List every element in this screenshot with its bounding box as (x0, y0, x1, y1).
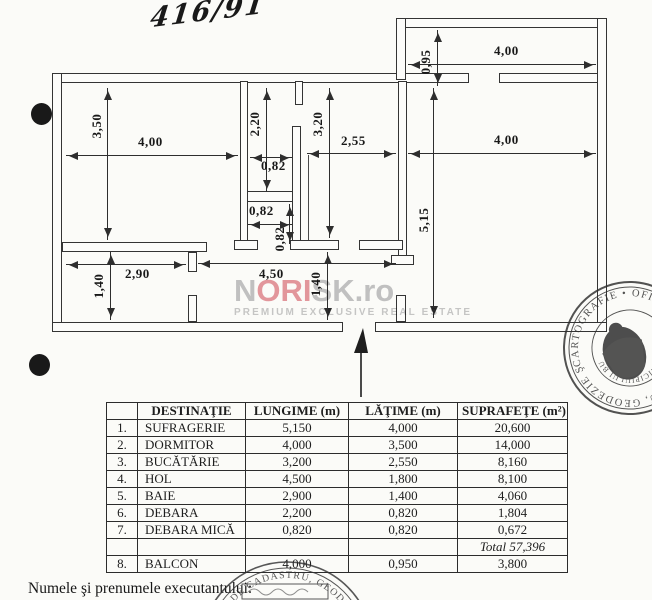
entrance-arrow (347, 327, 377, 399)
cell-index: 6. (107, 505, 138, 522)
cell-destinatie: DEBARA (138, 505, 246, 522)
cell-destinatie: HOL (138, 471, 246, 488)
dimension-line-hol-width (198, 263, 396, 264)
cell-lungime: 4,500 (246, 471, 349, 488)
dimension-label-debara-height: 2,20 (247, 112, 263, 137)
dimension-line-debara-mica-width (248, 224, 292, 225)
header-destinatie: DESTINAŢIE (138, 403, 246, 420)
scanned-document: 416/91 (0, 0, 652, 600)
cell-latime (349, 539, 458, 556)
wall-baie-right-lower (188, 295, 197, 322)
header-index (107, 403, 138, 420)
hole-punch-dot-top (31, 103, 52, 125)
wall-dormitor-right (240, 81, 248, 243)
cell-index: 8. (107, 556, 138, 573)
dimension-line-bucatarie-width (307, 153, 396, 154)
cell-suprafete: 0,672 (458, 522, 568, 539)
dimension-line-debara-height (266, 88, 267, 192)
cell-destinatie: BUCĂTĂRIE (138, 454, 246, 471)
wall-debara-right (292, 126, 301, 242)
wall-balcony-top (396, 18, 607, 28)
cell-index: 1. (107, 420, 138, 437)
dimension-line-bucatarie-height (329, 88, 330, 238)
cell-suprafete: 8,160 (458, 454, 568, 471)
cell-index: 3. (107, 454, 138, 471)
watermark-brand-gray-start: N (234, 273, 256, 308)
cell-suprafete: 8,100 (458, 471, 568, 488)
cell-latime: 0,820 (349, 522, 458, 539)
dimension-label-dormitor-width: 4,00 (138, 134, 163, 150)
watermark-tagline: PREMIUM EXCLUSIVE REAL ESTATE (234, 307, 472, 318)
cell-suprafete: 14,000 (458, 437, 568, 454)
cell-lungime: 0,820 (246, 522, 349, 539)
watermark-brand-accent: ORI (256, 273, 311, 308)
dimension-label-debara-width: 0,82 (261, 158, 286, 174)
dimension-label-balcon-width: 4,00 (494, 43, 519, 59)
wall-baie-top (62, 242, 207, 252)
cell-latime: 1,800 (349, 471, 458, 488)
cell-suprafete: 1,804 (458, 505, 568, 522)
cell-lungime: 2,200 (246, 505, 349, 522)
wall-left (52, 73, 62, 332)
wall-bottom-left (52, 322, 343, 332)
cell-lungime: 5,150 (246, 420, 349, 437)
dimension-line-balcon-height (437, 30, 438, 86)
stamp-ring-text: DE CADASTRU, GEODEZIE ŞI (228, 570, 364, 600)
dimension-label-sufragerie-width: 4,00 (494, 132, 519, 148)
dimension-line-baie-width (66, 264, 186, 265)
dimension-label-sufragerie-height: 5,15 (416, 208, 432, 233)
watermark: NORISK.ro PREMIUM EXCLUSIVE REAL ESTATE (234, 276, 472, 318)
dimension-label-debara-mica-width: 0,82 (249, 203, 274, 219)
cell-index: 2. (107, 437, 138, 454)
dimension-line-sufragerie-width (408, 153, 596, 154)
cell-index (107, 539, 138, 556)
cadastru-stamp-right: CARTOGRAFIE • OFICIUL DE CADASTRU, GEODE… (560, 274, 652, 444)
watermark-brand: NORISK.ro (234, 276, 472, 306)
wall-top-right (499, 73, 607, 83)
cell-latime: 2,550 (349, 454, 458, 471)
cell-latime: 0,820 (349, 505, 458, 522)
cell-destinatie: DORMITOR (138, 437, 246, 454)
header-lungime: LUNGIME (m) (246, 403, 349, 420)
table-row: 4. HOL 4,500 1,800 8,100 (107, 471, 568, 488)
cell-destinatie (138, 539, 246, 556)
dimension-line-baie-height (110, 252, 111, 320)
cell-latime: 4,000 (349, 420, 458, 437)
cell-destinatie: DEBARA MICĂ (138, 522, 246, 539)
cell-latime: 1,400 (349, 488, 458, 505)
wall-debara-stub (295, 81, 303, 105)
file-number-handwritten: 416/91 (148, 0, 267, 34)
cell-suprafete: 4,060 (458, 488, 568, 505)
hole-punch-dot-bottom (29, 354, 50, 376)
cell-index: 7. (107, 522, 138, 539)
cell-index: 4. (107, 471, 138, 488)
wall-balcony-left (396, 18, 406, 80)
table-row: 5. BAIE 2,900 1,400 4,060 (107, 488, 568, 505)
cell-lungime: 2,900 (246, 488, 349, 505)
dimension-label-baie-height: 1,40 (91, 274, 107, 299)
wall-dormitor-right-footing (234, 240, 258, 250)
header-suprafete: SUPRAFEŢE (m²) (458, 403, 568, 420)
cell-destinatie: BAIE (138, 488, 246, 505)
table-row: 6. DEBARA 2,200 0,820 1,804 (107, 505, 568, 522)
wall-baie-right-upper (188, 252, 197, 272)
cell-total: Total 57,396 (458, 539, 568, 556)
extension-line (308, 155, 309, 240)
dimension-label-bucatarie-width: 2,55 (341, 133, 366, 149)
cell-latime: 3,500 (349, 437, 458, 454)
dimension-label-bucatarie-height: 3,20 (310, 112, 326, 137)
dimension-line-balcon-width (408, 64, 596, 65)
dimension-label-baie-width: 2,90 (125, 266, 150, 282)
wall-bucatarie-sufragerie (398, 81, 407, 257)
dimension-label-dormitor-height: 3,50 (89, 114, 105, 139)
cell-lungime: 3,200 (246, 454, 349, 471)
svg-text:DE CADASTRU, GEODEZIE ŞI: DE CADASTRU, GEODEZIE ŞI (228, 570, 364, 600)
dimension-line-debara-mica-height (289, 204, 290, 244)
table-header-row: DESTINAŢIE LUNGIME (m) LĂŢIME (m) SUPRAF… (107, 403, 568, 420)
wall-bucatarie-bottom-left (290, 240, 339, 250)
cell-lungime: 4,000 (246, 437, 349, 454)
wall-bucatarie-bottom-right (359, 240, 403, 250)
rooms-table: DESTINAŢIE LUNGIME (m) LĂŢIME (m) SUPRAF… (106, 402, 568, 573)
table-row: 7. DEBARA MICĂ 0,820 0,820 0,672 (107, 522, 568, 539)
cell-suprafete: 3,800 (458, 556, 568, 573)
dimension-label-balcon-height: 0,95 (418, 50, 434, 75)
signature-squiggle (248, 589, 308, 595)
table-total-row: Total 57,396 (107, 539, 568, 556)
header-latime: LĂŢIME (m) (349, 403, 458, 420)
cell-lungime (246, 539, 349, 556)
cell-index: 5. (107, 488, 138, 505)
cell-destinatie: SUFRAGERIE (138, 420, 246, 437)
watermark-brand-gray-end: SK.ro (312, 273, 395, 308)
cadastru-stamp-bottom: DE CADASTRU, GEODEZIE ŞI (190, 556, 390, 600)
cell-suprafete: 20,600 (458, 420, 568, 437)
table-row: 3. BUCĂTĂRIE 3,200 2,550 8,160 (107, 454, 568, 471)
dimension-line-dormitor-height (107, 88, 108, 240)
table-row: 2. DORMITOR 4,000 3,500 14,000 (107, 437, 568, 454)
dimension-label-debara-mica-height: 0,82 (272, 227, 288, 252)
table-row: 1. SUFRAGERIE 5,150 4,000 20,600 (107, 420, 568, 437)
dimension-line-dormitor-width (66, 155, 238, 156)
